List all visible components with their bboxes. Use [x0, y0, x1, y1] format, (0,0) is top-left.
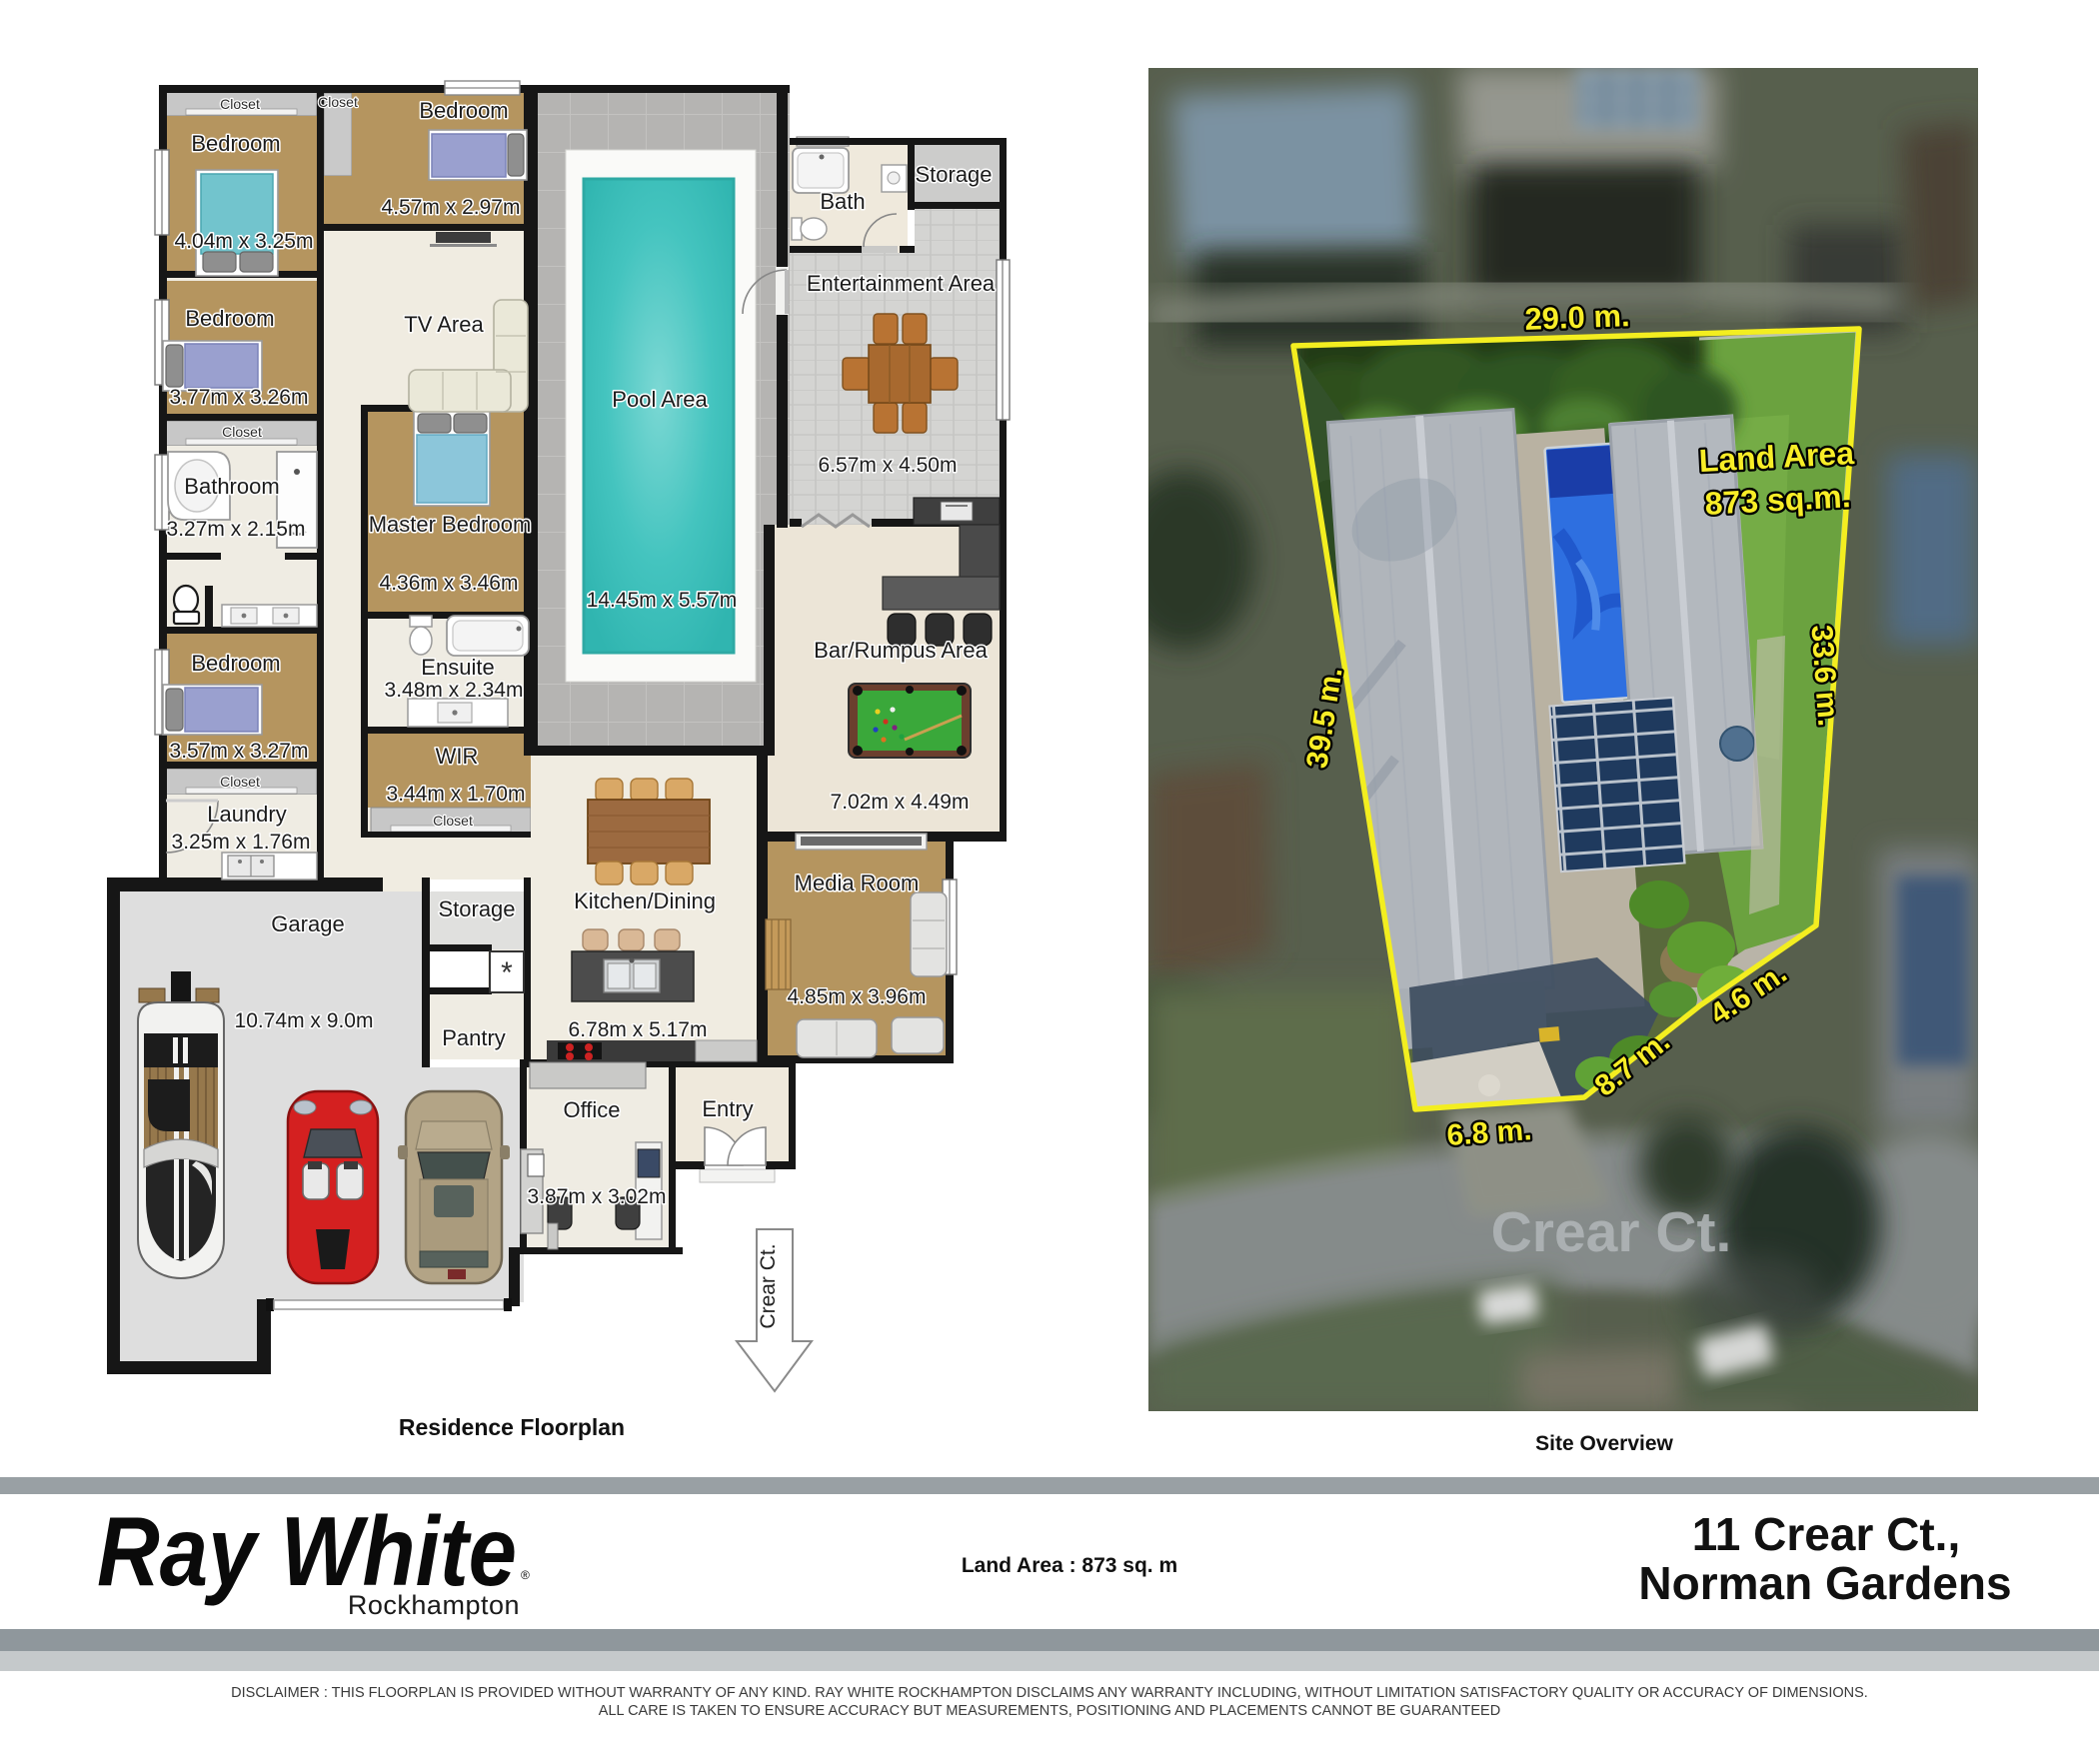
svg-text:DISCLAIMER : THIS FLOORPLAN IS: DISCLAIMER : THIS FLOORPLAN IS PROVIDED … [231, 1685, 1868, 1701]
svg-text:WIR: WIR [436, 744, 479, 769]
svg-text:873 sq.m.: 873 sq.m. [1704, 478, 1852, 522]
svg-text:3.87m x 3.02m: 3.87m x 3.02m [528, 1185, 667, 1208]
svg-text:3.25m x 1.76m: 3.25m x 1.76m [172, 831, 311, 854]
svg-text:11 Crear Ct.,: 11 Crear Ct., [1692, 1508, 1960, 1560]
svg-text:14.45m x 5.57m: 14.45m x 5.57m [587, 589, 738, 612]
svg-text:Entry: Entry [702, 1096, 753, 1121]
svg-text:Bath: Bath [820, 189, 865, 214]
svg-text:29.0 m.: 29.0 m. [1524, 298, 1630, 337]
svg-text:4.57m x 2.97m: 4.57m x 2.97m [382, 196, 521, 219]
svg-text:Pool Area: Pool Area [612, 387, 708, 412]
svg-text:Garage: Garage [271, 911, 344, 936]
svg-text:Entertainment Area: Entertainment Area [807, 271, 996, 296]
svg-text:Storage: Storage [915, 162, 992, 187]
svg-text:Bedroom: Bedroom [185, 306, 274, 331]
svg-text:Closet: Closet [220, 96, 260, 112]
svg-text:Bedroom: Bedroom [191, 131, 280, 156]
svg-text:Media Room: Media Room [795, 871, 920, 895]
svg-text:3.44m x 1.70m: 3.44m x 1.70m [387, 783, 526, 806]
svg-text:Bedroom: Bedroom [191, 651, 280, 676]
svg-text:Kitchen/Dining: Kitchen/Dining [574, 888, 716, 913]
svg-text:Closet: Closet [318, 94, 358, 110]
svg-text:Ensuite: Ensuite [421, 655, 494, 680]
svg-text:Rockhampton: Rockhampton [348, 1590, 520, 1620]
svg-text:Bar/Rumpus Area: Bar/Rumpus Area [814, 638, 988, 663]
svg-text:Storage: Storage [438, 896, 515, 921]
svg-text:6.57m x 4.50m: 6.57m x 4.50m [819, 454, 958, 477]
svg-text:3.57m x 3.27m: 3.57m x 3.27m [170, 740, 309, 763]
svg-text:Land Area : 873 sq. m: Land Area : 873 sq. m [962, 1554, 1177, 1577]
svg-text:3.48m x 2.34m: 3.48m x 2.34m [385, 679, 524, 702]
svg-text:4.36m x 3.46m: 4.36m x 3.46m [380, 572, 519, 595]
svg-text:Closet: Closet [220, 774, 260, 790]
svg-text:Norman Gardens: Norman Gardens [1638, 1557, 2011, 1609]
svg-text:TV Area: TV Area [404, 312, 484, 337]
svg-text:®: ® [521, 1568, 530, 1582]
svg-text:3.27m x 2.15m: 3.27m x 2.15m [167, 518, 306, 541]
svg-text:Closet: Closet [433, 813, 473, 829]
svg-text:3.77m x 3.26m: 3.77m x 3.26m [170, 386, 309, 409]
svg-text:7.02m x 4.49m: 7.02m x 4.49m [831, 791, 970, 814]
svg-text:6.78m x 5.17m: 6.78m x 5.17m [569, 1018, 708, 1041]
svg-text:Bathroom: Bathroom [184, 474, 279, 499]
svg-text:Pantry: Pantry [442, 1025, 506, 1050]
svg-text:Office: Office [563, 1097, 620, 1122]
svg-text:Residence Floorplan: Residence Floorplan [399, 1414, 625, 1440]
svg-text:*: * [501, 956, 513, 989]
svg-text:4.85m x 3.96m: 4.85m x 3.96m [788, 985, 927, 1008]
svg-text:Closet: Closet [222, 424, 262, 440]
svg-text:Bedroom: Bedroom [419, 98, 508, 123]
svg-text:10.74m x 9.0m: 10.74m x 9.0m [235, 1009, 374, 1032]
svg-text:6.8 m.: 6.8 m. [1445, 1113, 1532, 1152]
svg-text:Crear Ct.: Crear Ct. [757, 1243, 780, 1328]
svg-text:ALL CARE IS TAKEN TO ENSURE AC: ALL CARE IS TAKEN TO ENSURE ACCURACY BUT… [599, 1703, 1500, 1719]
svg-text:Master Bedroom: Master Bedroom [369, 512, 532, 537]
svg-text:Crear Ct.: Crear Ct. [1491, 1200, 1732, 1264]
svg-text:4.04m x 3.25m: 4.04m x 3.25m [175, 230, 314, 253]
svg-text:Laundry: Laundry [207, 802, 287, 827]
svg-text:Site Overview: Site Overview [1535, 1432, 1673, 1455]
